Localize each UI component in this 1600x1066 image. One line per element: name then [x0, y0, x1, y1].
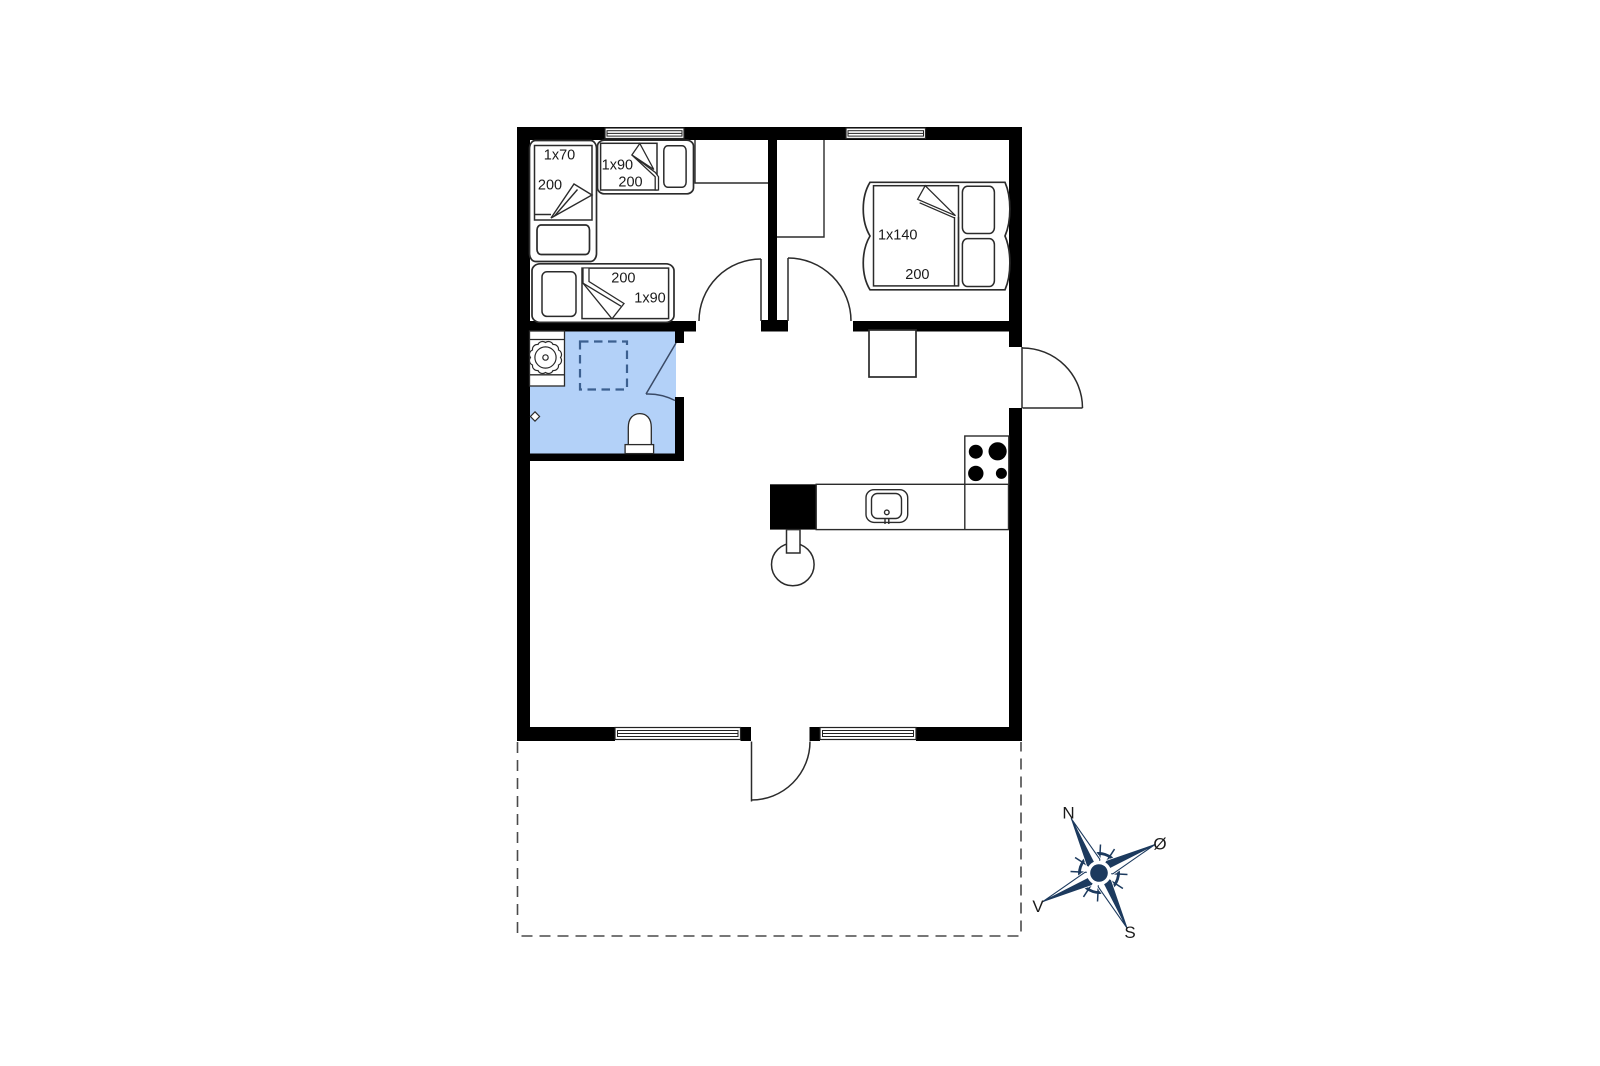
svg-text:1x70: 1x70: [544, 148, 575, 164]
svg-text:1x140: 1x140: [878, 228, 918, 244]
svg-text:200: 200: [611, 271, 635, 287]
svg-text:V: V: [1032, 897, 1044, 916]
svg-text:200: 200: [905, 267, 929, 283]
svg-text:Ø: Ø: [1153, 835, 1166, 854]
svg-text:1x90: 1x90: [602, 158, 633, 174]
svg-text:200: 200: [618, 175, 642, 191]
svg-text:1x90: 1x90: [634, 290, 665, 306]
svg-text:S: S: [1124, 923, 1135, 942]
svg-text:N: N: [1062, 804, 1074, 823]
svg-text:200: 200: [538, 178, 562, 194]
